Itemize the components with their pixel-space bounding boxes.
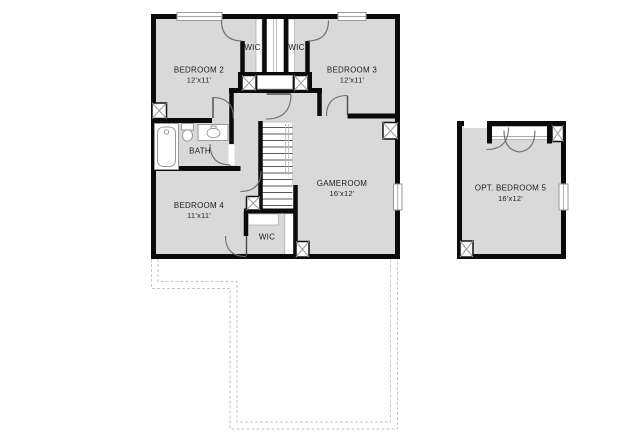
optbedroom5-closet-jamb <box>547 126 552 144</box>
sink-vanity-icon <box>198 125 228 141</box>
dims-opt-bedroom5: 16'x12' <box>498 194 523 203</box>
toilet-icon <box>182 124 194 142</box>
hall-closet-shelf <box>258 76 293 90</box>
floor-plan: BEDROOM 2 12'x11' BEDROOM 3 12'x11' WIC … <box>0 0 640 441</box>
optbedroom5-closet-jamb <box>487 126 492 144</box>
label-wic-bottom: WIC <box>259 233 275 242</box>
dashed-outline-inner <box>158 259 391 422</box>
dashed-foundation-outline <box>152 259 398 429</box>
x-box-hall-right <box>294 76 308 91</box>
label-wic-top-right: WIC <box>288 43 304 52</box>
window-x-bedroom2-left <box>152 103 167 119</box>
label-gameroom: GAMEROOM <box>317 179 368 188</box>
window-x-optbedroom5-bottom <box>460 241 473 257</box>
dashed-outline-outer <box>152 259 398 429</box>
window-bedroom3-top <box>338 13 366 21</box>
x-box-stair-nook <box>247 197 261 211</box>
bath-door-gap <box>229 145 235 166</box>
optbedroom5-door-gap <box>464 121 487 129</box>
wic-bottom-shelf <box>249 214 279 225</box>
dims-gameroom: 16'x12' <box>329 189 354 198</box>
x-box-wic-bottom <box>296 242 309 258</box>
label-opt-bedroom5: OPT. BEDROOM 5 <box>475 184 547 193</box>
window-x-optbedroom5-top <box>552 126 564 142</box>
dims-bedroom2: 12'x11' <box>187 76 212 85</box>
label-bedroom4: BEDROOM 4 <box>174 201 225 210</box>
window-gameroom-right <box>394 184 403 210</box>
chase-void <box>267 17 284 74</box>
window-optbedroom5-right <box>559 184 568 210</box>
label-bedroom3: BEDROOM 3 <box>327 66 378 75</box>
window-bedroom2-top <box>177 13 222 21</box>
optbedroom5-closet-shelf <box>490 127 552 140</box>
bathtub-icon <box>155 124 179 170</box>
dims-bedroom4: 11'x11' <box>187 211 211 220</box>
label-bath: BATH <box>189 147 211 156</box>
x-box-hall-left <box>242 76 256 91</box>
label-wic-top-left: WIC <box>244 43 260 52</box>
window-x-gameroom-right <box>383 123 398 140</box>
dims-bedroom3: 12'x11' <box>340 76 365 85</box>
floor-plan-canvas: BEDROOM 2 12'x11' BEDROOM 3 12'x11' WIC … <box>0 0 640 441</box>
label-bedroom2: BEDROOM 2 <box>174 66 225 75</box>
wic-bottom-side-void <box>285 214 294 257</box>
